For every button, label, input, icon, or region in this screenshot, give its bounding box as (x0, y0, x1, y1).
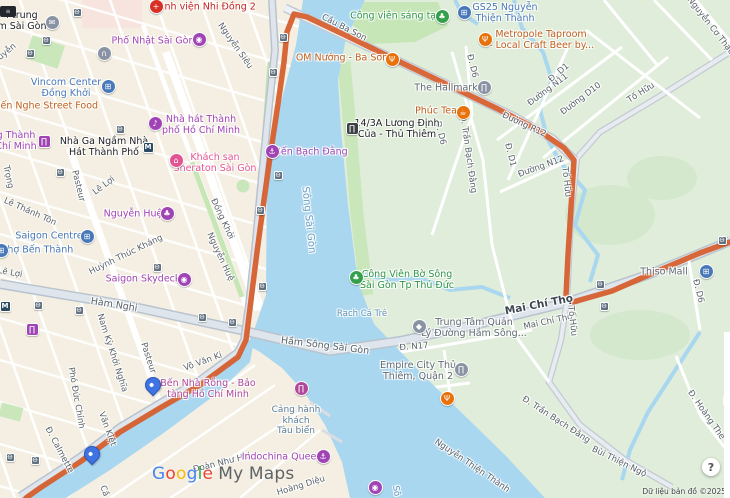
right-edge-panel (724, 332, 730, 498)
map-canvas[interactable] (0, 0, 730, 498)
google-my-maps-watermark: GoogleMy Maps (152, 464, 294, 484)
map-viewport[interactable]: TrọnguyễnLê Thánh TônLê LợiLê LợiPasteur… (0, 0, 730, 498)
truncated-label-plate: ≡ (0, 6, 16, 17)
help-button[interactable]: ? (702, 458, 720, 476)
map-attribution: Dữ liệu bản đồ ©2025 (642, 487, 726, 496)
